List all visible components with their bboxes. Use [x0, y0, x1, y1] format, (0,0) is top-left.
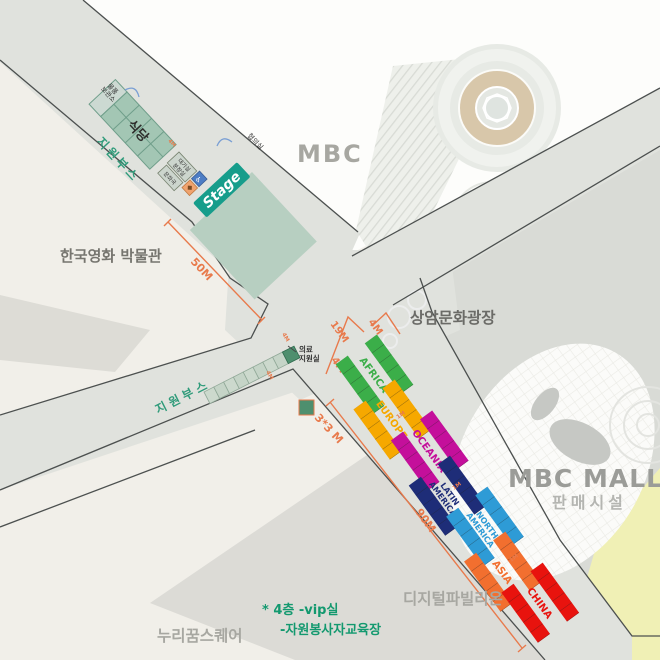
plaza-label: 상암문화광장: [410, 308, 496, 327]
svg-text:의료: 의료: [299, 344, 313, 354]
mall-label: MBC MALL: [508, 464, 660, 493]
site-map-canvas: 식당 물품 보관소 대기실 분장실 문화국 ♿ 협의실 4M Stage 지원부…: [0, 0, 660, 660]
svg-text:지원실: 지원실: [299, 353, 320, 363]
nuri-label: 누리꿈스퀘어: [157, 627, 243, 645]
note-line1: * 4층 -vip실: [262, 602, 338, 618]
sample-booth-3x3: [299, 400, 314, 415]
mall-sub-label: 판매시설: [552, 493, 627, 512]
note-line2: -자원봉사자교육장: [280, 622, 381, 638]
museum-label: 한국영화 박물관: [60, 247, 162, 265]
mbc-label: MBC: [297, 140, 363, 168]
pavilion-label: 디지털파빌리온: [403, 589, 503, 608]
info-icon: [188, 186, 192, 190]
event-site-map: 식당 물품 보관소 대기실 분장실 문화국 ♿ 협의실 4M Stage 지원부…: [0, 0, 660, 660]
